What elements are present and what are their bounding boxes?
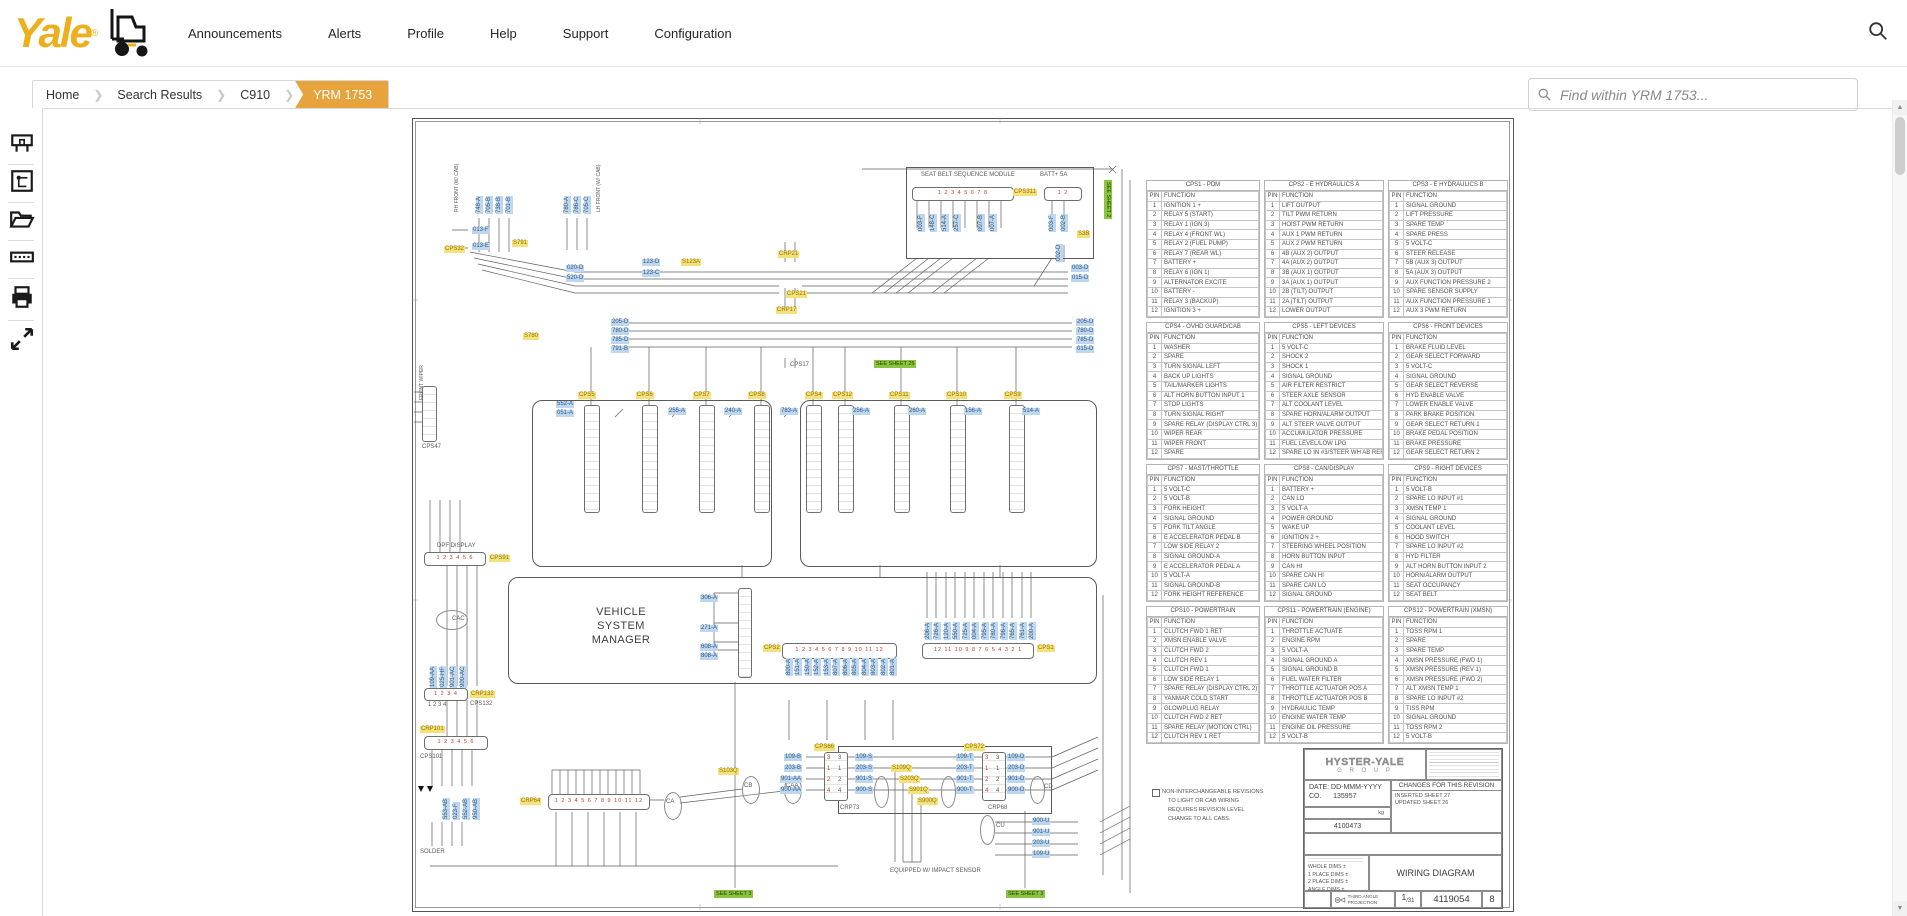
wire-label: DPF DISPLAY — [437, 543, 476, 550]
wire-label: 901-T — [956, 776, 974, 783]
wire-label: 900-D — [1007, 787, 1025, 794]
wire-label: 800-A — [786, 658, 793, 676]
wire-label: 748-A — [476, 196, 483, 214]
wire-label: SEE SHEET 2 — [1104, 180, 1112, 219]
note-checkbox — [1152, 789, 1160, 797]
wire-label: CPS21 — [786, 291, 807, 298]
nav-item-configuration[interactable]: Configuration — [654, 26, 731, 41]
wire-label: 015-D — [1071, 275, 1089, 282]
wire-label: 514-A — [1022, 408, 1040, 415]
breadcrumb-active-item[interactable]: YRM 1753 — [295, 81, 388, 108]
title-block-material-cell — [1304, 833, 1502, 855]
pin-table-cps6: CPS6 - FRONT DEVICESPINFUNCTION1BRAKE FL… — [1388, 322, 1508, 460]
app-window: Yale ® AnnouncementsAlertsProfileHelpSup… — [0, 0, 1907, 916]
wire-label: 780-D — [611, 328, 629, 335]
wire-label: 900-AC — [460, 666, 467, 688]
registered-mark: ® — [91, 28, 98, 39]
breadcrumb-separator-icon: ❯ — [92, 81, 104, 108]
cps5-strip — [584, 405, 600, 513]
wire-label: 552-AB — [463, 798, 470, 820]
cd-oval — [1030, 776, 1045, 804]
wire-label: 900-U — [1032, 818, 1050, 825]
ca-oval — [664, 792, 682, 820]
wire-label: 256-A — [852, 408, 870, 415]
wire-label: 701-B — [506, 196, 513, 214]
viewer-border — [42, 108, 1893, 109]
wire-label: 520-D — [566, 275, 584, 282]
wire-label: 803-A — [871, 658, 878, 676]
wire-label: 705-C — [584, 196, 591, 214]
wire-label: 109-T — [956, 754, 974, 761]
pin-table-cps12: CPS12 - POWERTRAIN (XMSN)PINFUNCTION1TOS… — [1388, 606, 1508, 744]
wire-label: 785-D — [611, 337, 629, 344]
wire-label: 780-A — [991, 622, 998, 640]
wire-label: CPS72 — [964, 744, 985, 751]
nav-item-support[interactable]: Support — [563, 26, 609, 41]
pin-table-cps4: CPS4 - OVHD GUARD/CABPINFUNCTION1WASHER2… — [1146, 322, 1260, 460]
wire-label: 1 — [827, 766, 830, 773]
wire-label: CPS91 — [489, 555, 510, 562]
cb-oval — [742, 776, 760, 804]
pin-table-cps11: CPS11 - POWERTRAIN (ENGINE)PINFUNCTION1T… — [1264, 606, 1384, 744]
open-folder-icon[interactable] — [9, 206, 35, 232]
crp101-strip: 1 2 3 4 5 6 — [424, 736, 488, 750]
title-block-name-cell: WIRING DIAGRAM — [1369, 855, 1502, 891]
wire-label: 203-B — [784, 765, 802, 772]
pin-table-cps10: CPS10 - POWERTRAIN (XMSN/ENGINE)PINFUNCT… — [1146, 606, 1260, 744]
scroll-down-arrow[interactable]: ▼ — [1893, 901, 1907, 916]
toolbar-divider — [8, 240, 34, 241]
wire-label: 2 — [827, 777, 830, 784]
cps3-strip — [738, 588, 752, 678]
wire-label: 203-U — [1032, 840, 1050, 847]
wire-label: 002-D — [1056, 244, 1063, 262]
wire-label: EQUIPPED W/ IMPACT SENSOR — [890, 868, 981, 875]
wire-label: 203-S — [855, 765, 873, 772]
wire-label: 4 — [996, 788, 999, 795]
wire-label: 950-AB — [473, 798, 480, 820]
cps8-strip — [754, 405, 770, 513]
cps10-strip — [950, 405, 966, 513]
crp64-strip: 1 2 3 4 5 6 7 8 9 10 11 12 — [548, 794, 650, 810]
wire-label: CA — [666, 799, 674, 806]
drawing-title: WIRING DIAGRAM — [1397, 868, 1475, 878]
wire-label: S3B — [1077, 231, 1090, 238]
forklift-icon — [98, 5, 152, 61]
title-block-date-cell: DATE: DD-MMM-YYYY CO. 135957 — [1304, 780, 1391, 807]
wire-label: 203-T — [956, 765, 974, 772]
wire-label: CPS2 — [763, 645, 781, 652]
title-block-projection-cell: THIRD ANGLE PROJECTION — [1331, 891, 1395, 908]
vsm-title: VEHICLE SYSTEM MANAGER — [576, 606, 666, 647]
wire-label: 156-A — [964, 408, 982, 415]
wire-label: 002-B — [1061, 214, 1068, 232]
pin-table-cps7: CPS7 - MAST/THROTTLEPINFUNCTION15 VOLT-C… — [1146, 464, 1260, 602]
wire-label: LH FRONT (W/ CAB) — [597, 165, 603, 212]
expand-icon[interactable] — [9, 326, 35, 352]
wire-label: 780-A — [564, 196, 571, 214]
cps11-strip — [894, 405, 910, 513]
title-block-tolerance-cell: WHOLE DIMS ± 1 PLACE DIMS ± 2 PLACE DIMS… — [1304, 855, 1369, 891]
wire-label: S109Q — [891, 765, 912, 772]
wire-label: 206-A — [925, 622, 932, 640]
wire-label: 306-A — [700, 595, 718, 602]
search-icon[interactable] — [1867, 20, 1889, 42]
wire-label: 804-A — [862, 658, 869, 676]
cu-oval — [980, 815, 995, 845]
revision-note: NON-INTERCHANGEABLE REVISIONS TO LIGHT O… — [1162, 788, 1263, 824]
wire-label: CRP132 — [470, 691, 495, 698]
wire-label: CPS17 — [790, 362, 809, 369]
wire-label: BATT+ 5A — [1040, 172, 1067, 179]
wire-label: CPS1 — [1037, 645, 1055, 652]
wire-label: 255-A — [668, 408, 686, 415]
wire-label: SEE SHEET 3 — [1006, 890, 1045, 898]
wire-label: 004-A — [972, 622, 979, 640]
wire-label: 808-A — [700, 653, 718, 660]
wire-label: S103Q — [718, 768, 739, 775]
pin-table-cps8: CPS8 - CAN/DISPLAYPINFUNCTION1BATTERY +2… — [1264, 464, 1384, 602]
wire-label: CPS101 — [420, 754, 442, 761]
breadcrumb-item[interactable]: C910 — [227, 81, 283, 108]
nav-item-help[interactable]: Help — [490, 26, 517, 41]
wire-label: 109-AA — [430, 666, 437, 688]
wire-label: CPS6 — [636, 392, 654, 399]
wire-label: S791 — [512, 240, 528, 247]
seat-belt-pin-strip: 1 2 3 4 5 6 7 8 — [912, 187, 1014, 201]
wire-label: 4 — [827, 788, 830, 795]
wire-label: 025-HF — [440, 666, 447, 688]
wire-label: FRONT WIPER — [420, 365, 426, 400]
wire-label: 725-A — [963, 622, 970, 640]
wire-label: CRP64 — [520, 798, 541, 805]
crp132-strip: 1 2 3 4 — [424, 688, 468, 701]
wire-label: 2 — [996, 777, 999, 784]
wire-label: 791-B — [611, 346, 629, 353]
wire-label: S203Q — [899, 776, 920, 783]
wire-label: CPS32 — [444, 246, 465, 253]
wire-label: 109-S — [855, 754, 873, 761]
wire-label: CRP101 — [420, 726, 445, 733]
wire-label: CAC — [452, 616, 465, 623]
wire-label: CD — [1044, 784, 1053, 791]
wire-label: SEAT BELT SEQUENCE MODULE — [921, 172, 1015, 179]
wire-label: 726-A — [934, 622, 941, 640]
wire-label: CPS132 — [470, 701, 492, 708]
wire-label: 200-A — [1029, 622, 1036, 640]
wire-label: 2 — [838, 777, 841, 784]
wire-label: 240-A — [724, 408, 742, 415]
wire-label: 801-A — [890, 658, 897, 676]
wire-label: CRP21 — [778, 251, 799, 258]
revision-number: 8 — [1489, 894, 1494, 905]
cps4-strip — [806, 405, 822, 513]
wire-label: 013-E — [472, 243, 490, 250]
wire-label: 271-A — [700, 625, 718, 632]
breadcrumb-separator-icon: ❯ — [215, 81, 227, 108]
printer-icon[interactable] — [9, 284, 35, 310]
wire-label: 051-A — [556, 410, 574, 417]
find-input[interactable] — [1558, 86, 1849, 104]
wire-label: CPS10 — [946, 392, 967, 399]
toolbar-divider — [8, 164, 34, 165]
connector-view-icon[interactable] — [9, 130, 35, 156]
solder-marker — [418, 786, 424, 792]
wire-label: 1 — [985, 766, 988, 773]
wire-label: 901-AA — [780, 776, 802, 783]
wire-label: 3 — [985, 755, 988, 762]
wire-label: 901-U — [1032, 829, 1050, 836]
wire-label: 003-F — [1049, 214, 1056, 232]
cps12-strip — [838, 405, 854, 513]
wire-label: 3 — [996, 755, 999, 762]
wire-label: 109-D — [1007, 754, 1025, 761]
wire-label: 900-T — [956, 787, 974, 794]
wire-label: CPS7 — [693, 392, 711, 399]
toolbar-divider — [8, 278, 34, 279]
pin-table-cps1: CPS1 - PDMPINFUNCTION1IGNITION 1 +2RELAY… — [1146, 180, 1260, 318]
wire-label: RH FRONT (W/ CAB) — [455, 164, 461, 212]
wire-label: CPS66 — [814, 744, 835, 751]
wire-label: S900Q — [917, 798, 938, 805]
drawing-number: 4119054 — [1433, 894, 1469, 905]
cps1-strip: 12 11 10 9 8 7 6 5 4 3 2 1 — [922, 643, 1034, 659]
seat-belt-batt-strip: 1 2 — [1044, 187, 1082, 201]
toolbar-divider — [8, 320, 34, 321]
splice-oval — [874, 776, 889, 808]
schematic-icon[interactable] — [9, 168, 35, 194]
wire-label: 109-B — [784, 754, 802, 761]
cps6-strip — [642, 405, 658, 513]
wire-label: 3 — [827, 755, 830, 762]
breadcrumb-item[interactable]: Search Results — [104, 81, 215, 108]
wire-label: 552-A — [556, 401, 574, 408]
wire-label: 901-D — [1007, 776, 1025, 783]
wire-label: CPS311 — [1013, 189, 1037, 196]
toolbar-divider — [8, 202, 34, 203]
wire-label: 765-A — [1010, 622, 1017, 640]
wire-label: 150-A — [805, 658, 812, 676]
wire-label: 901-AC — [450, 666, 457, 688]
wire-label: 901-S — [855, 776, 873, 783]
wire-label: 514-A — [942, 214, 949, 232]
title-block-weight-cell: kg — [1304, 807, 1391, 819]
wire-label: 007-B — [978, 214, 985, 232]
wire-label: 003-F — [918, 214, 925, 232]
wire-label: 786-C — [574, 196, 581, 214]
wire-label: 020-D — [566, 265, 584, 272]
third-angle-projection-icon — [1334, 894, 1346, 906]
cps9-strip — [1009, 405, 1025, 513]
wire-label: 4 — [838, 788, 841, 795]
wire-label: 003-D — [1071, 265, 1089, 272]
wire-label: 205-D — [1076, 319, 1094, 326]
find-box — [1528, 78, 1858, 111]
wire-label: 608-A — [700, 644, 718, 651]
wire-label: 1 — [996, 766, 999, 773]
scroll-up-arrow[interactable]: ▲ — [1893, 100, 1907, 115]
wire-label: 806-A — [843, 658, 850, 676]
wire-label: 550-A — [953, 622, 960, 640]
wire-label: 795-A — [982, 622, 989, 640]
wire-label: 780-D — [1076, 328, 1094, 335]
splice-oval — [941, 776, 956, 808]
breadcrumb: Home❯Search Results❯C910❯YRM 1753 — [32, 80, 389, 109]
wire-label: 013-F — [472, 227, 490, 234]
wire-label: 123-D — [642, 259, 660, 266]
wire-label: CPS12 — [832, 392, 853, 399]
wire-label: 153-A — [824, 658, 831, 676]
wire-label: S780 — [523, 333, 539, 340]
wire-label: 705-B — [486, 196, 493, 214]
cps91-strip: 1 2 3 4 5 6 — [424, 552, 486, 566]
breadcrumb-item[interactable]: Home — [33, 81, 92, 108]
nav-item-profile[interactable]: Profile — [407, 26, 444, 41]
pin-table-cps2: CPS2 - E HYDRAULICS APINFUNCTION1LIFT OU… — [1264, 180, 1384, 318]
wire-label: 203-D — [1007, 765, 1025, 772]
wire-label: CRP73 — [840, 805, 859, 812]
title-block-changes-cell: CHANGES FOR THIS REVISION INSERTED SHEET… — [1391, 780, 1502, 833]
title-block-disclaimer-cell — [1426, 749, 1502, 780]
main-nav: AnnouncementsAlertsProfileHelpSupportCon… — [188, 0, 732, 66]
wire-label: 260-A — [908, 408, 926, 415]
wire-label: 805-A — [852, 658, 859, 676]
cps7-strip — [699, 405, 715, 513]
wire-label: 785-D — [1076, 337, 1094, 344]
wire-label: 761-A — [1020, 622, 1027, 640]
wire-label: SOLDER — [420, 849, 445, 856]
wire-label: 802-A — [881, 658, 888, 676]
wire-label: 3 — [838, 755, 841, 762]
wire-label: SEE SHEET 25 — [874, 360, 916, 368]
wire-label: 900-AA — [780, 787, 802, 794]
wire-label: CPS11 — [889, 392, 910, 399]
wire-label: S123A — [681, 259, 701, 266]
wire-label: 796-A — [1001, 622, 1008, 640]
title-block-sheet-cell: 1/31 — [1395, 891, 1421, 908]
wire-label: CRP68 — [988, 805, 1007, 812]
nav-item-alerts[interactable]: Alerts — [328, 26, 361, 41]
wire-label: 738-B — [496, 196, 503, 214]
wire-label: CPS5 — [578, 392, 596, 399]
wire-label: 257-C — [954, 214, 961, 232]
pin-table-cps9: CPS9 - RIGHT DEVICESPINFUNCTION15 VOLT-B… — [1388, 464, 1508, 602]
hyster-yale-logo: HYSTER-YALE — [1326, 756, 1405, 768]
wire-label: CPS4 — [805, 392, 823, 399]
wire-label: 807-A — [833, 658, 840, 676]
wire-label: 553-AB — [443, 798, 450, 820]
cps2-strip: 1 2 3 4 5 6 7 8 9 10 11 12 — [782, 643, 897, 659]
top-header: Yale ® AnnouncementsAlertsProfileHelpSup… — [0, 0, 1907, 67]
wire-label: CRP17 — [776, 307, 797, 314]
wire-label: 1 — [838, 766, 841, 773]
title-block-scale-cell — [1304, 891, 1331, 908]
find-magnifier-icon — [1537, 87, 1552, 102]
scrollbar-thumb[interactable] — [1895, 117, 1905, 175]
title-block-logo-cell: HYSTER-YALE G R O U P — [1304, 749, 1426, 780]
nav-item-announcements[interactable]: Announcements — [188, 26, 282, 41]
wire-label: 1 2 3 4 — [428, 702, 446, 709]
wire-label: 109-U — [1032, 851, 1050, 858]
pin-table-cps3: CPS3 - E HYDRAULICS BPINFUNCTION1SIGNAL … — [1388, 180, 1508, 318]
pin-table-cps5: CPS5 - LEFT DEVICESPINFUNCTION15 VOLT-C2… — [1264, 322, 1384, 460]
wire-label: 007-A — [990, 214, 997, 232]
wire-label: CPS8 — [748, 392, 766, 399]
wire-label: 4 — [985, 788, 988, 795]
title-block-drawing-number-cell: 4119054 — [1421, 891, 1482, 908]
title-block: HYSTER-YALE G R O U P DATE: DD-MMM-YYYY … — [1303, 748, 1503, 909]
wire-label: 2 — [985, 777, 988, 784]
terminal-strip-icon[interactable] — [9, 244, 35, 270]
wire-label: CU — [996, 823, 1005, 830]
wire-label: 900-S — [855, 787, 873, 794]
title-block-similar-cell: 4100473 — [1304, 819, 1391, 833]
wire-label: CPS47 — [422, 444, 441, 451]
yale-logo[interactable]: Yale ® — [14, 2, 152, 64]
wire-label: CPS9 — [1004, 392, 1022, 399]
wire-label: 015-D — [1076, 346, 1094, 353]
wire-label: 205-D — [611, 319, 629, 326]
wire-label: 123-C — [642, 270, 660, 277]
wire-label: 148-C — [930, 214, 937, 232]
vertical-scrollbar[interactable]: ▲ ▼ — [1892, 100, 1907, 916]
wire-label: 783-A — [780, 408, 798, 415]
wire-label: 120-A — [944, 622, 951, 640]
solder-marker — [427, 786, 433, 792]
wire-label: CB — [744, 783, 752, 790]
wire-label: SEE SHEET 3 — [714, 890, 753, 898]
wire-label: 151-A — [795, 658, 802, 676]
breadcrumb-separator-icon: ❯ — [283, 81, 295, 108]
wire-label: S901Q — [908, 787, 929, 794]
left-toolbar — [0, 108, 43, 916]
wire-label: 152-A — [814, 658, 821, 676]
brand-text: Yale — [14, 12, 91, 54]
wire-label: 023-F — [453, 802, 460, 820]
title-block-revision-cell: 8 — [1482, 891, 1502, 908]
